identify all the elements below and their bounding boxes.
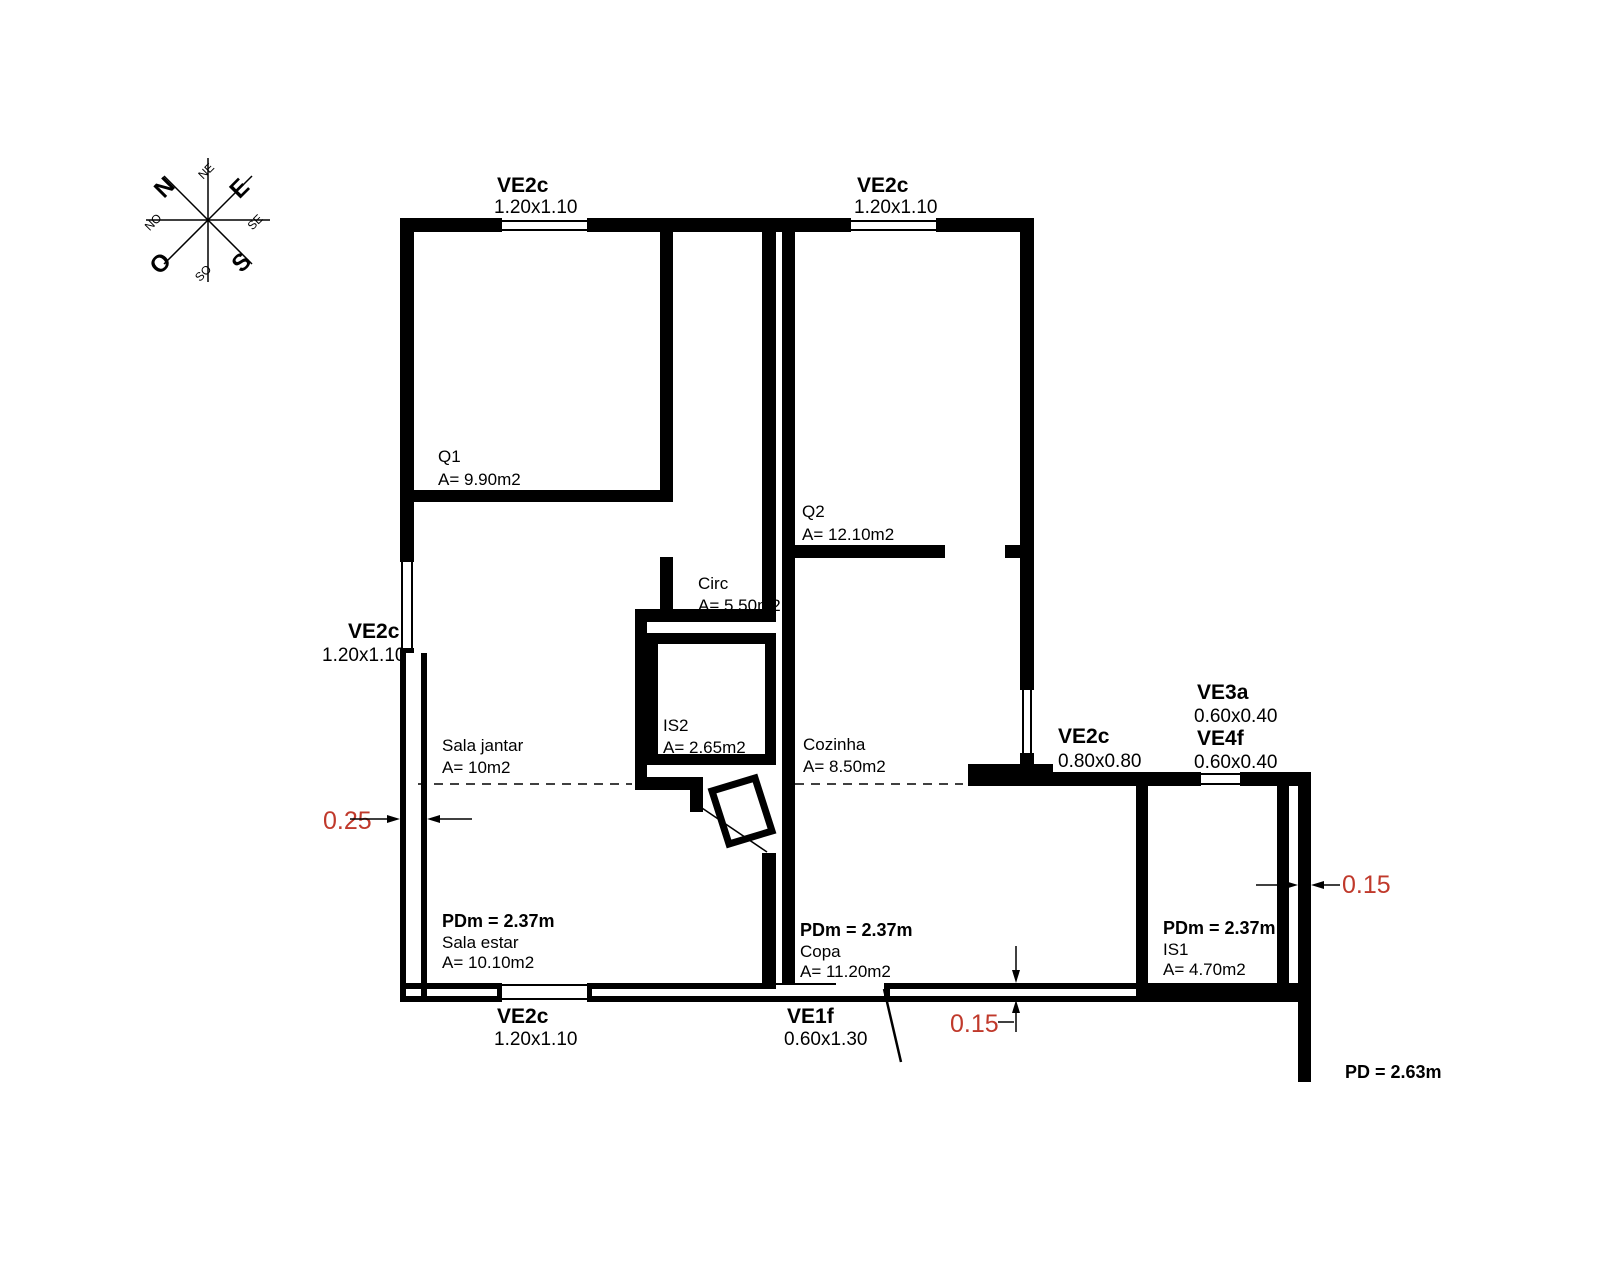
dimension-bottom-wall: 0.15: [950, 946, 1020, 1038]
interior-door-leaf: [699, 778, 772, 852]
window-ve3a-name: VE3a: [1197, 681, 1249, 704]
room-sala-estar-pdm: PDm = 2.37m: [442, 911, 555, 931]
room-cozinha-area: A= 8.50m2: [803, 757, 886, 776]
room-cozinha-name: Cozinha: [803, 735, 866, 754]
window-bottom-size: 1.20x1.10: [494, 1029, 577, 1050]
window-left-size: 1.20x1.10: [322, 645, 405, 666]
window-top-right-name: VE2c: [857, 174, 909, 197]
window-top-left-size: 1.20x1.10: [494, 197, 577, 218]
room-sala-estar-area: A= 10.10m2: [442, 953, 534, 972]
dimension-left-wall-value: 0.25: [323, 807, 372, 835]
room-sala-jantar-area: A= 10m2: [442, 758, 511, 777]
dimension-right-wall-value: 0.15: [1342, 871, 1391, 899]
room-sala-jantar-name: Sala jantar: [442, 736, 524, 755]
dimension-left-wall: 0.25: [323, 807, 472, 835]
room-circ-area: A= 5.50m2: [698, 596, 781, 615]
room-is1-area: A= 4.70m2: [1163, 960, 1246, 979]
room-is2-area: A= 2.65m2: [663, 738, 746, 757]
compass-south-label: S: [226, 247, 256, 277]
floor-plan-page: N E S O NE SE SO NO: [0, 0, 1600, 1280]
window-east-mid-name: VE2c: [1058, 725, 1110, 748]
room-q2-name: Q2: [802, 502, 825, 521]
room-copa-name: Copa: [800, 942, 841, 961]
compass-west-label: O: [145, 248, 177, 280]
compass-se-label: SE: [245, 212, 266, 233]
room-copa-pdm: PDm = 2.37m: [800, 920, 913, 940]
window-east-mid-size: 0.80x0.80: [1058, 751, 1141, 772]
compass-north-label: N: [149, 172, 180, 203]
dimension-right-wall: 0.15: [1256, 871, 1391, 899]
window-ve3a-size: 0.60x0.40: [1194, 706, 1277, 727]
window-glass-lines: [400, 218, 1245, 1002]
room-sala-estar-name: Sala estar: [442, 933, 519, 952]
room-labels: Q1 A= 9.90m2 Q2 A= 12.10m2 Circ A= 5.50m…: [438, 447, 1276, 981]
room-is1-pdm: PDm = 2.37m: [1163, 918, 1276, 938]
window-top-right-size: 1.20x1.10: [854, 197, 937, 218]
room-q2-area: A= 12.10m2: [802, 525, 894, 544]
window-top-left-name: VE2c: [497, 174, 549, 197]
window-bottom-name: VE2c: [497, 1005, 549, 1028]
entry-door-size: 0.60x1.30: [784, 1029, 867, 1050]
window-left-name: VE2c: [348, 620, 400, 643]
compass-rose: N E S O NE SE SO NO: [142, 158, 270, 284]
window-ve4f-size: 0.60x0.40: [1194, 752, 1277, 773]
room-is1-name: IS1: [1163, 940, 1189, 959]
entry-door-name: VE1f: [787, 1005, 835, 1028]
room-q1-name: Q1: [438, 447, 461, 466]
compass-ne-label: NE: [195, 160, 217, 182]
room-copa-area: A= 11.20m2: [800, 962, 891, 981]
ceiling-height-note: PD = 2.63m: [1345, 1062, 1442, 1082]
window-ve4f-name: VE4f: [1197, 727, 1245, 750]
compass-so-label: SO: [192, 262, 214, 284]
room-is2-name: IS2: [663, 716, 689, 735]
dimension-bottom-wall-value: 0.15: [950, 1010, 999, 1038]
compass-no-label: NO: [142, 211, 165, 234]
room-circ-name: Circ: [698, 574, 729, 593]
floor-plan-drawing: N E S O NE SE SO NO: [0, 0, 1600, 1280]
room-q1-area: A= 9.90m2: [438, 470, 521, 489]
